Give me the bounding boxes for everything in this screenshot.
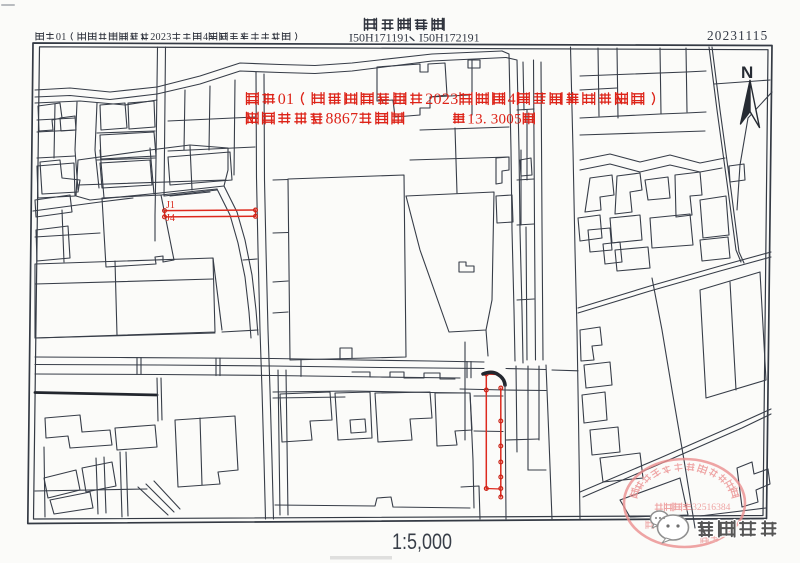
svg-text:N: N	[741, 63, 753, 82]
svg-text:2: 2	[442, 91, 450, 108]
svg-text:1: 1	[467, 112, 475, 128]
svg-text:20231115: 20231115	[707, 28, 768, 43]
svg-text:.: .	[483, 112, 487, 128]
svg-text:1: 1	[286, 91, 294, 108]
svg-text:1:5,000: 1:5,000	[392, 529, 452, 554]
svg-text:8: 8	[334, 111, 342, 128]
svg-text:3: 3	[491, 112, 499, 128]
svg-text:J4: J4	[166, 213, 175, 224]
svg-text:2: 2	[425, 91, 433, 108]
svg-text:0: 0	[506, 112, 514, 128]
svg-text:7: 7	[350, 111, 358, 128]
svg-text:I50H171191: I50H171191	[349, 31, 409, 45]
svg-text:0: 0	[56, 32, 61, 43]
svg-text:3: 3	[475, 112, 483, 128]
svg-text:2: 2	[161, 32, 166, 43]
svg-text:2: 2	[150, 32, 155, 43]
svg-text:0: 0	[278, 91, 286, 108]
svg-text:1: 1	[61, 32, 66, 43]
svg-text:0: 0	[156, 32, 161, 43]
svg-text:0: 0	[499, 112, 507, 128]
svg-text:6: 6	[342, 111, 350, 128]
svg-text:0: 0	[434, 91, 442, 108]
svg-text:4: 4	[203, 32, 208, 43]
svg-text:4: 4	[508, 91, 516, 108]
svg-text:3: 3	[450, 91, 458, 108]
svg-text:I50H172191: I50H172191	[419, 31, 480, 45]
svg-text:3: 3	[166, 32, 171, 43]
svg-text:32516384: 32516384	[692, 502, 731, 513]
svg-text:J1: J1	[166, 200, 175, 211]
svg-text:5: 5	[514, 112, 522, 128]
svg-text:8: 8	[326, 111, 334, 128]
